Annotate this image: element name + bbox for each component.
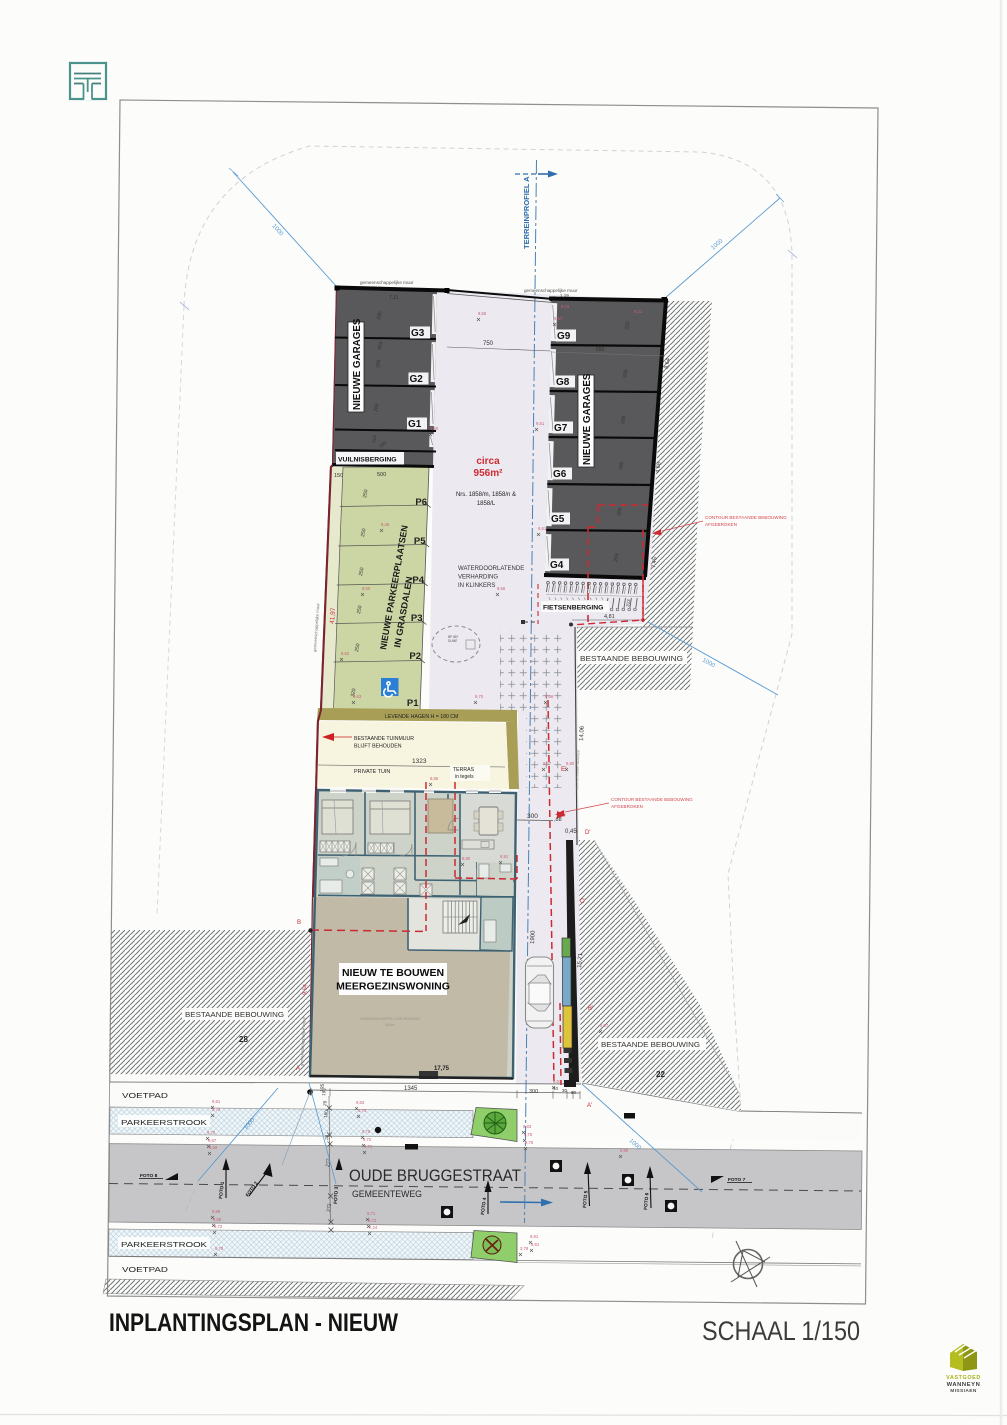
svg-text:1900: 1900 — [530, 930, 537, 944]
svg-text:G3: G3 — [411, 328, 425, 339]
svg-text:17,75: 17,75 — [434, 1066, 450, 1072]
svg-text:9,76: 9,76 — [525, 1140, 534, 1145]
svg-text:9,54: 9,54 — [302, 984, 309, 995]
svg-text:1345: 1345 — [404, 1086, 418, 1092]
svg-text:9,80: 9,80 — [462, 856, 471, 861]
svg-text:SCHAAL 1/150: SCHAAL 1/150 — [702, 1316, 860, 1346]
svg-text:650: 650 — [596, 347, 605, 353]
svg-text:C': C' — [580, 899, 585, 905]
svg-text:VUILNISBERGING: VUILNISBERGING — [338, 457, 397, 464]
svg-text:A: A — [296, 1066, 300, 1072]
svg-text:180: 180 — [323, 1110, 329, 1119]
svg-text:DUME: DUME — [448, 639, 457, 643]
svg-text:D': D' — [585, 830, 590, 836]
svg-text:Nrs. 1858/m, 1858/n &: Nrs. 1858/m, 1858/n & — [456, 492, 516, 498]
svg-text:gemeenschappelijke muur: gemeenschappelijke muur — [360, 280, 414, 285]
svg-text:BESTAANDE BEBOUWING: BESTAANDE BEBOUWING — [185, 1010, 284, 1019]
svg-text:14,06: 14,06 — [579, 725, 586, 741]
svg-text:9,70: 9,70 — [207, 1130, 216, 1135]
svg-text:GEMEENSCHAPPELIJKE BERGING: GEMEENSCHAPPELIJKE BERGING — [360, 1017, 420, 1021]
svg-text:E': E' — [561, 766, 567, 773]
svg-text:G2: G2 — [410, 374, 424, 385]
svg-text:PRIVATE TUIN: PRIVATE TUIN — [354, 769, 390, 775]
svg-text:9,70: 9,70 — [475, 694, 484, 699]
svg-text:9,89: 9,89 — [212, 1209, 221, 1214]
svg-text:300: 300 — [529, 1089, 538, 1095]
svg-text:BLIJFT BEHOUDEN: BLIJFT BEHOUDEN — [354, 744, 402, 750]
svg-text:P5: P5 — [414, 536, 426, 547]
svg-text:BESTAANDE BEBOUWING: BESTAANDE BEBOUWING — [580, 654, 683, 663]
svg-text:NIEUWE GARAGES: NIEUWE GARAGES — [352, 318, 363, 410]
svg-text:B: B — [297, 920, 301, 926]
svg-text:9,55: 9,55 — [478, 311, 487, 316]
svg-text:FOTO 8: FOTO 8 — [140, 1173, 158, 1179]
svg-text:28: 28 — [239, 1035, 248, 1044]
svg-text:9,80: 9,80 — [620, 1148, 629, 1153]
svg-text:7,11: 7,11 — [389, 295, 399, 301]
svg-text:9,80: 9,80 — [566, 761, 575, 766]
svg-text:9,21: 9,21 — [634, 309, 643, 314]
svg-text:OUDE BRUGGESTRAAT: OUDE BRUGGESTRAAT — [349, 1167, 521, 1185]
svg-text:150: 150 — [334, 473, 343, 479]
svg-text:G7: G7 — [554, 423, 568, 434]
svg-text:FOTO 7: FOTO 7 — [728, 1177, 746, 1183]
svg-text:4,81: 4,81 — [604, 614, 615, 620]
svg-text:TERRAS: TERRAS — [453, 767, 475, 773]
svg-text:5,79: 5,79 — [358, 1108, 367, 1113]
svg-text:A': A' — [587, 1103, 592, 1109]
svg-text:5,73: 5,73 — [212, 1107, 221, 1112]
svg-text:7,24: 7,24 — [369, 1225, 378, 1230]
svg-text:0,45: 0,45 — [565, 829, 577, 835]
svg-text:9,56: 9,56 — [497, 586, 506, 591]
svg-text:PARKEERSTROOK: PARKEERSTROOK — [121, 1240, 207, 1249]
svg-text:9,57: 9,57 — [554, 316, 563, 321]
svg-text:NIEUWE GARAGES: NIEUWE GARAGES — [582, 373, 593, 465]
svg-text:9,76: 9,76 — [524, 1132, 533, 1137]
svg-text:1858/L: 1858/L — [477, 501, 496, 507]
svg-text:9,72: 9,72 — [363, 1137, 372, 1142]
svg-text:9,72: 9,72 — [368, 1218, 377, 1223]
svg-text:INPLANTINGSPLAN - NIEUW: INPLANTINGSPLAN - NIEUW — [109, 1309, 398, 1337]
svg-text:300: 300 — [527, 813, 538, 820]
svg-text:9,69: 9,69 — [209, 1145, 218, 1150]
svg-text:9,67: 9,67 — [208, 1138, 217, 1143]
svg-text:1,19: 1,19 — [560, 293, 569, 298]
svg-text:9,81: 9,81 — [530, 1234, 539, 1239]
svg-text:P6: P6 — [415, 497, 427, 508]
svg-text:MISSIAEN: MISSIAEN — [950, 1388, 977, 1394]
svg-text:9,52: 9,52 — [341, 651, 350, 656]
svg-text:G6: G6 — [553, 469, 567, 480]
svg-text:9,63: 9,63 — [353, 694, 362, 699]
svg-text:9,67: 9,67 — [543, 761, 552, 766]
svg-text:B': B' — [588, 1006, 593, 1012]
svg-text:22: 22 — [656, 1070, 665, 1079]
svg-text:41,97: 41,97 — [329, 607, 337, 624]
svg-text:35,6m²: 35,6m² — [385, 1023, 396, 1027]
svg-text:P2: P2 — [409, 651, 421, 662]
svg-text:9,50: 9,50 — [362, 586, 371, 591]
svg-text:5,78: 5,78 — [215, 1246, 224, 1251]
svg-text:9,83: 9,83 — [523, 1124, 532, 1129]
svg-text:BESTAANDE BEBOUWING: BESTAANDE BEBOUWING — [601, 1040, 700, 1049]
svg-text:9,75: 9,75 — [362, 1129, 371, 1134]
svg-text:VOETPAD: VOETPAD — [122, 1265, 169, 1274]
svg-text:195: 195 — [319, 1083, 326, 1092]
svg-text:AFGEBROKEN: AFGEBROKEN — [611, 804, 643, 809]
svg-text:PARKEERSTROOK: PARKEERSTROOK — [121, 1118, 207, 1127]
svg-text:NIEUW TE BOUWEN: NIEUW TE BOUWEN — [342, 967, 444, 979]
svg-text:272: 272 — [326, 1203, 333, 1212]
svg-text:9,86: 9,86 — [430, 776, 439, 781]
svg-text:9,81: 9,81 — [212, 1099, 221, 1104]
svg-text:956m²: 956m² — [474, 468, 504, 479]
svg-text:IN KLINKERS: IN KLINKERS — [458, 583, 495, 589]
svg-text:9,83: 9,83 — [356, 1100, 365, 1105]
svg-text:G5: G5 — [551, 514, 565, 525]
svg-text:gemeenschappelijke muur: gemeenschappelijke muur — [524, 288, 578, 293]
svg-text:VERHARDING: VERHARDING — [458, 575, 498, 581]
svg-text:9,51: 9,51 — [536, 421, 545, 426]
svg-text:60: 60 — [571, 1090, 577, 1095]
svg-text:9,46: 9,46 — [381, 522, 390, 527]
svg-text:1323: 1323 — [412, 758, 427, 765]
svg-text:TERREINPROFIEL A: TERREINPROFIEL A — [522, 176, 531, 249]
svg-text:9,72: 9,72 — [214, 1224, 223, 1229]
svg-text:G1: G1 — [408, 419, 422, 430]
svg-text:FOTO 3: FOTO 3 — [333, 1186, 340, 1204]
svg-text:FIETSENBERGING: FIETSENBERGING — [543, 605, 603, 612]
svg-text:AFGEBROKEN: AFGEBROKEN — [705, 522, 737, 527]
svg-text:MEERGEZINSWONING: MEERGEZINSWONING — [336, 981, 450, 993]
svg-text:CONTOUR BESTAANDE BEBOUWING: CONTOUR BESTAANDE BEBOUWING — [611, 797, 693, 802]
svg-text:BESTAANDE TUINMUUR: BESTAANDE TUINMUUR — [354, 736, 414, 742]
svg-text:P4: P4 — [412, 575, 424, 586]
svg-text:G9: G9 — [557, 331, 571, 342]
svg-text:9,50: 9,50 — [430, 426, 439, 431]
svg-text:circa: circa — [476, 456, 500, 467]
svg-text:9,61: 9,61 — [538, 526, 547, 531]
svg-text:500: 500 — [377, 472, 386, 478]
svg-text:9,71: 9,71 — [364, 1144, 373, 1149]
svg-text:G4: G4 — [550, 560, 564, 571]
svg-text:9,97: 9,97 — [600, 1023, 609, 1028]
svg-text:VASTGOED: VASTGOED — [946, 1375, 981, 1381]
svg-text:P3: P3 — [411, 613, 423, 624]
svg-text:in tegels: in tegels — [455, 774, 474, 780]
svg-text:G8: G8 — [556, 377, 570, 388]
svg-text:9,66: 9,66 — [545, 694, 554, 699]
svg-text:P1: P1 — [407, 698, 419, 709]
svg-text:9,91: 9,91 — [531, 1242, 540, 1247]
svg-text:9,91: 9,91 — [500, 854, 509, 859]
svg-text:3,79: 3,79 — [520, 1246, 529, 1251]
svg-text:GEMEENTEWEG: GEMEENTEWEG — [352, 1189, 422, 1200]
svg-text:40: 40 — [553, 1086, 559, 1091]
svg-text:9,69: 9,69 — [213, 1217, 222, 1222]
svg-text:750: 750 — [483, 341, 494, 347]
svg-text:9,91: 9,91 — [553, 1079, 562, 1084]
svg-text:9,71: 9,71 — [367, 1211, 376, 1216]
svg-text:9,19: 9,19 — [561, 304, 570, 309]
svg-text:WATERDOORLATENDE: WATERDOORLATENDE — [458, 566, 524, 572]
svg-text:VOETPAD: VOETPAD — [122, 1091, 169, 1100]
svg-text:LEVENDE HAGEN H = 180 CM: LEVENDE HAGEN H = 180 CM — [385, 714, 458, 720]
svg-text:30: 30 — [562, 1088, 568, 1093]
svg-text:WANNEYN: WANNEYN — [947, 1382, 981, 1388]
svg-text:CONTOUR BESTAANDE BEBOUWING: CONTOUR BESTAANDE BEBOUWING — [705, 515, 787, 520]
